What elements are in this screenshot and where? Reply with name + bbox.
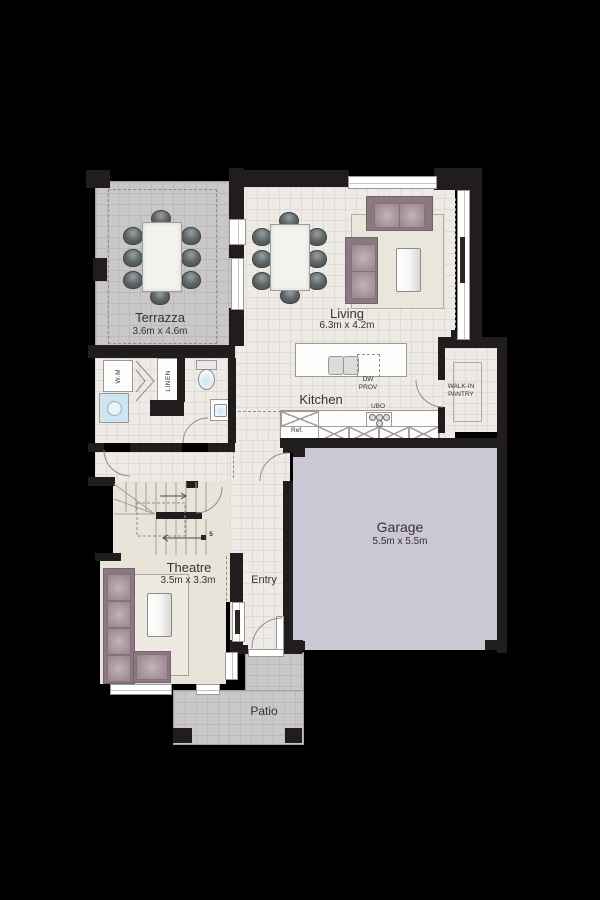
window-sash <box>235 610 240 634</box>
dining-chair <box>252 250 272 268</box>
stair-void-wall <box>156 512 202 519</box>
wall <box>438 348 445 380</box>
dining-table-terrazza <box>142 222 182 292</box>
sink-basin <box>328 356 344 375</box>
washing-machine-label: W.M <box>115 369 122 384</box>
wall <box>95 553 121 561</box>
room-label-patio: Patio <box>250 704 277 718</box>
room-label-kitchen: Kitchen <box>299 392 342 407</box>
front-door-leaf <box>276 616 284 650</box>
window <box>110 684 172 695</box>
sofa-cushion <box>107 655 131 682</box>
window <box>348 176 437 189</box>
window <box>225 652 238 680</box>
wall <box>88 443 104 452</box>
linen-label: LINEN <box>165 370 172 392</box>
wall <box>150 400 184 416</box>
kitchen-dashed-line <box>233 411 281 412</box>
patio-post <box>173 728 192 743</box>
room-label-theatre: Theatre <box>167 560 212 575</box>
wall <box>130 443 182 452</box>
dining-chair <box>181 227 201 245</box>
room-label-entry: Entry <box>251 574 277 586</box>
tub-bowl-icon <box>107 401 122 416</box>
wall <box>229 308 244 346</box>
dishwasher-provision <box>357 354 380 377</box>
dining-chair <box>181 271 201 289</box>
dining-chair <box>307 272 327 290</box>
dining-chair <box>181 249 201 267</box>
dining-chair <box>123 227 143 245</box>
dining-chair <box>123 271 143 289</box>
dining-chair <box>252 228 272 246</box>
window-sash <box>460 237 465 283</box>
room-dims-theatre: 3.5m x 3.3m <box>160 575 215 586</box>
dining-chair <box>252 272 272 290</box>
wall <box>177 358 185 402</box>
room-dims-living: 6.3m x 4.2m <box>319 320 374 331</box>
dining-chair <box>307 250 327 268</box>
alfresco-dashed-line <box>455 198 456 333</box>
washing-machine: W.M <box>103 360 133 392</box>
wall <box>434 168 482 190</box>
burner-icon <box>376 420 383 427</box>
room-label-terrazza: Terrazza <box>135 310 185 325</box>
wall <box>468 190 482 343</box>
sofa-cushion <box>351 244 376 272</box>
stair-riser-marker: 5 <box>209 531 213 539</box>
toilet-bowl <box>198 369 215 390</box>
wall <box>229 243 244 258</box>
room-label-garage: Garage <box>377 519 424 535</box>
patio-post <box>285 728 302 743</box>
sofa-cushion <box>351 271 376 299</box>
wall <box>230 553 243 602</box>
window <box>231 258 244 310</box>
window <box>196 684 220 695</box>
entry-threshold <box>248 649 284 657</box>
wall <box>438 407 445 433</box>
dining-chair <box>123 249 143 267</box>
wall-post <box>93 258 107 281</box>
sofa-cushion <box>374 203 400 228</box>
floor-plan: W.M LINEN <box>0 0 600 900</box>
room-dims-terrazza: 3.6m x 4.6m <box>132 326 187 337</box>
wall <box>86 170 110 188</box>
theatre-boundary-dashed <box>226 556 227 601</box>
burner-icon <box>383 414 390 421</box>
wall <box>186 481 198 488</box>
room-label-pantry: WALK-INPANTRY <box>448 383 475 398</box>
dining-chair <box>307 228 327 246</box>
laundry-tub <box>99 393 129 423</box>
sofa-cushion <box>399 203 425 228</box>
wall <box>497 337 507 653</box>
garage-corner-notch <box>485 640 497 650</box>
wc-basin <box>210 399 230 421</box>
wall <box>283 448 293 453</box>
wall <box>280 438 497 448</box>
room-label-living: Living <box>330 306 364 321</box>
wall <box>283 640 303 653</box>
label-ubo: UBO <box>371 403 385 411</box>
linen-cupboard: LINEN <box>157 358 179 404</box>
coffee-table-living <box>396 248 421 292</box>
label-ref: Ref. <box>291 427 303 435</box>
patio-floor-upper <box>245 652 304 693</box>
hall-floor <box>95 452 235 481</box>
wall <box>88 477 115 486</box>
wall <box>228 358 236 443</box>
garage-floor <box>293 448 497 650</box>
dining-table-living <box>270 224 310 291</box>
sofa-cushion <box>136 654 168 680</box>
overhead-cupboard <box>281 411 319 427</box>
sofa-cushion <box>107 601 131 628</box>
room-dims-garage: 5.5m x 5.5m <box>372 536 427 547</box>
burner-icon <box>369 414 376 421</box>
wall <box>235 170 349 187</box>
window <box>229 219 246 245</box>
sofa-cushion <box>107 574 131 601</box>
wall <box>88 345 235 358</box>
basin-bowl-icon <box>214 404 227 417</box>
sofa-cushion <box>107 628 131 655</box>
wall <box>208 443 235 452</box>
label-dw-prov: DWPROV <box>359 376 377 391</box>
cooktop <box>366 412 392 427</box>
garage-corner-notch <box>293 448 305 457</box>
coffee-table-theatre <box>147 593 172 637</box>
wall <box>283 481 293 653</box>
